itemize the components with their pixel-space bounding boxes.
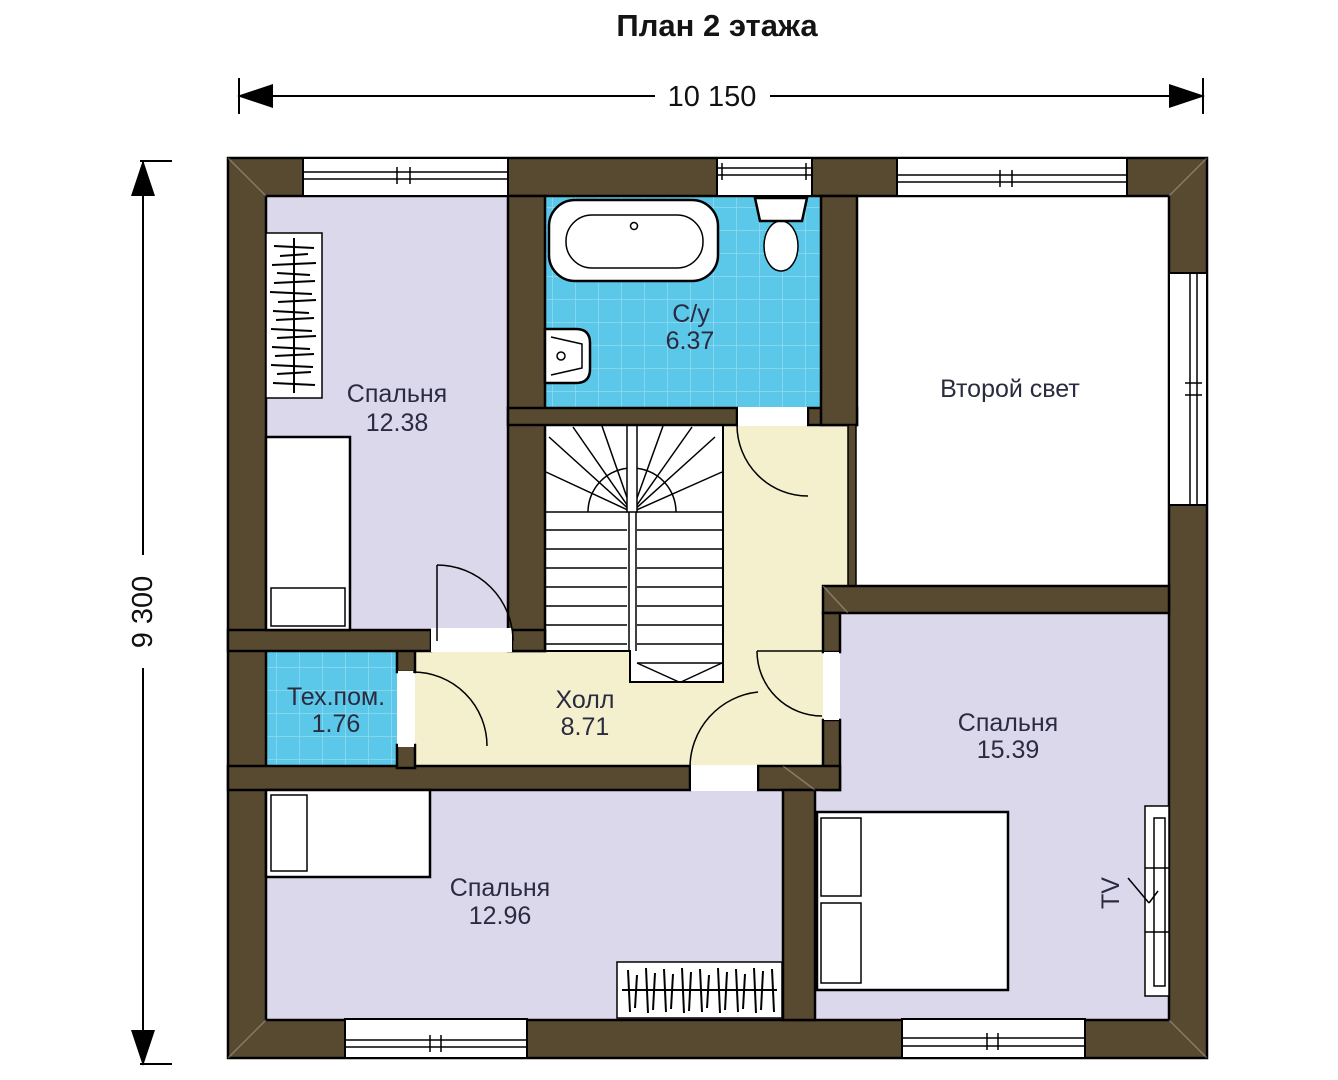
wall-between-bedrooms: [783, 790, 815, 1020]
floor-plan-page: План 2 этажа 10 150 9 300: [0, 0, 1338, 1080]
wall-bedroom-top-bottom-left: [228, 630, 431, 651]
label-tech-name: Тех.пом.: [287, 683, 385, 711]
dimension-vertical: 9 300: [127, 160, 172, 1066]
label-bedroom-right-name: Спальня: [958, 709, 1058, 737]
window-bedroom-top: [303, 158, 508, 196]
wall-partition-second-light: [848, 425, 856, 586]
label-bedroom-right-area: 15.39: [977, 736, 1040, 764]
bathtub: [549, 200, 718, 281]
label-bedroom-bottom-area: 12.96: [469, 902, 532, 930]
wardrobe-bedroom-top: [266, 233, 322, 398]
door-opening-bedroom-bottom: [691, 765, 757, 791]
wall-bedroom-right-top: [823, 586, 1169, 613]
wall-tech-right-bottom: [397, 745, 415, 768]
staircase: [545, 425, 723, 682]
dim-height-label: 9 300: [127, 576, 159, 649]
door-opening-bathroom: [738, 407, 807, 426]
dim-arrow-right: [1169, 84, 1205, 108]
door-opening-bedroom-right: [824, 652, 839, 720]
wardrobe-bedroom-bottom: [617, 962, 782, 1018]
label-hall-area: 8.71: [561, 713, 610, 741]
door-opening-tech: [398, 671, 414, 747]
wall-bath-bottom-left: [508, 408, 737, 425]
wall-hall-bottom-left: [228, 766, 690, 790]
bed-bedroom-right: [817, 812, 1008, 990]
room-fill-hall-mid: [723, 586, 823, 768]
bed-bedroom-top: [266, 437, 350, 630]
bed-bedroom-bottom: [266, 790, 430, 877]
window-bedroom-right-bottom: [902, 1019, 1085, 1058]
window-second-light-top: [897, 158, 1127, 196]
stair-newel: [627, 425, 637, 512]
label-bedroom-top-name: Спальня: [347, 380, 447, 408]
wall-bedroom-top-bottom-right: [512, 630, 545, 651]
window-bathroom: [717, 158, 812, 196]
label-hall-name: Холл: [556, 686, 615, 714]
dimension-horizontal: 10 150: [237, 78, 1205, 114]
window-second-light-right: [1169, 273, 1207, 505]
wall-bedroom-right-door-top: [823, 613, 840, 652]
label-bedroom-bottom-name: Спальня: [450, 874, 550, 902]
wall-bath-right: [821, 196, 857, 425]
window-bedroom-bottom: [345, 1019, 527, 1058]
dim-arrow-down: [131, 1030, 155, 1066]
label-bathroom-name: С/у: [672, 300, 710, 328]
page-title: План 2 этажа: [616, 8, 818, 43]
door-opening-bedroom-top: [431, 628, 512, 652]
dim-width-label: 10 150: [668, 81, 757, 113]
tv-label: TV: [1097, 877, 1125, 909]
dim-arrow-left: [237, 84, 273, 108]
label-tech-area: 1.76: [312, 710, 361, 738]
label-bedroom-top-area: 12.38: [366, 409, 429, 437]
dim-arrow-up: [131, 160, 155, 196]
label-bathroom-area: 6.37: [666, 327, 715, 355]
label-second-light-name: Второй свет: [940, 375, 1080, 403]
floor-plan-drawing: План 2 этажа 10 150 9 300: [0, 0, 1338, 1080]
sink: [545, 329, 590, 383]
